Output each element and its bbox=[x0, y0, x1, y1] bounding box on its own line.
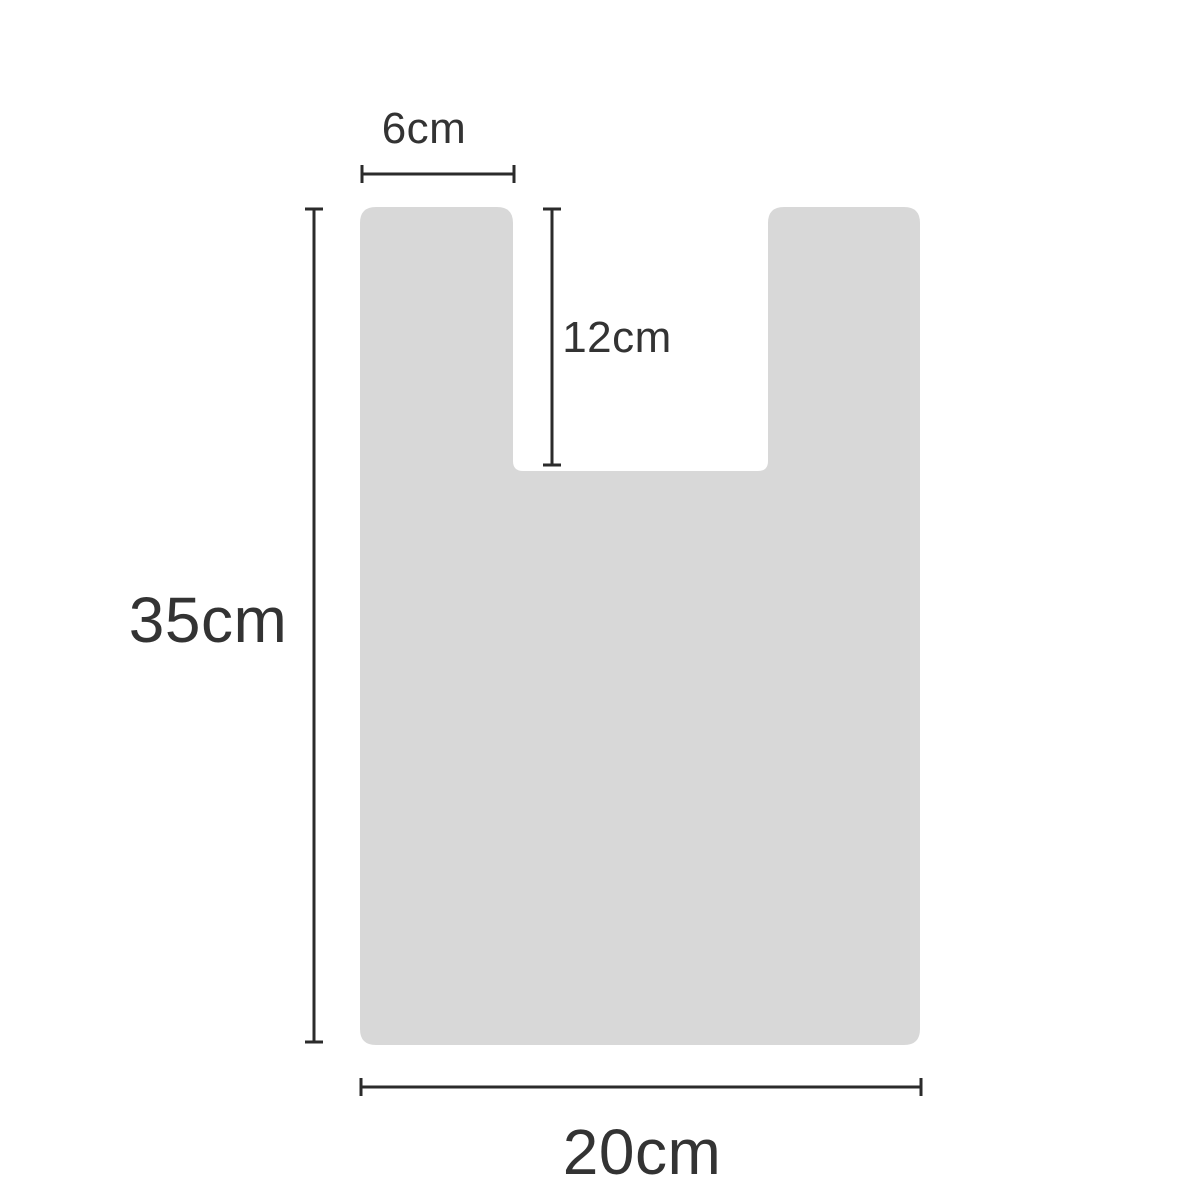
dim-label-bag-width: 20cm bbox=[563, 1115, 722, 1189]
dimension-line-bag-height bbox=[305, 209, 323, 1042]
dim-label-handle-width: 6cm bbox=[382, 104, 467, 154]
dim-label-notch-depth: 12cm bbox=[562, 313, 672, 363]
dimension-line-notch-depth bbox=[543, 209, 561, 465]
dimension-line-handle-width bbox=[362, 165, 514, 183]
dim-label-bag-height: 35cm bbox=[129, 583, 288, 657]
dimension-diagram: 6cm 12cm 35cm 20cm bbox=[0, 0, 1200, 1200]
dimension-line-bag-width bbox=[361, 1078, 921, 1096]
